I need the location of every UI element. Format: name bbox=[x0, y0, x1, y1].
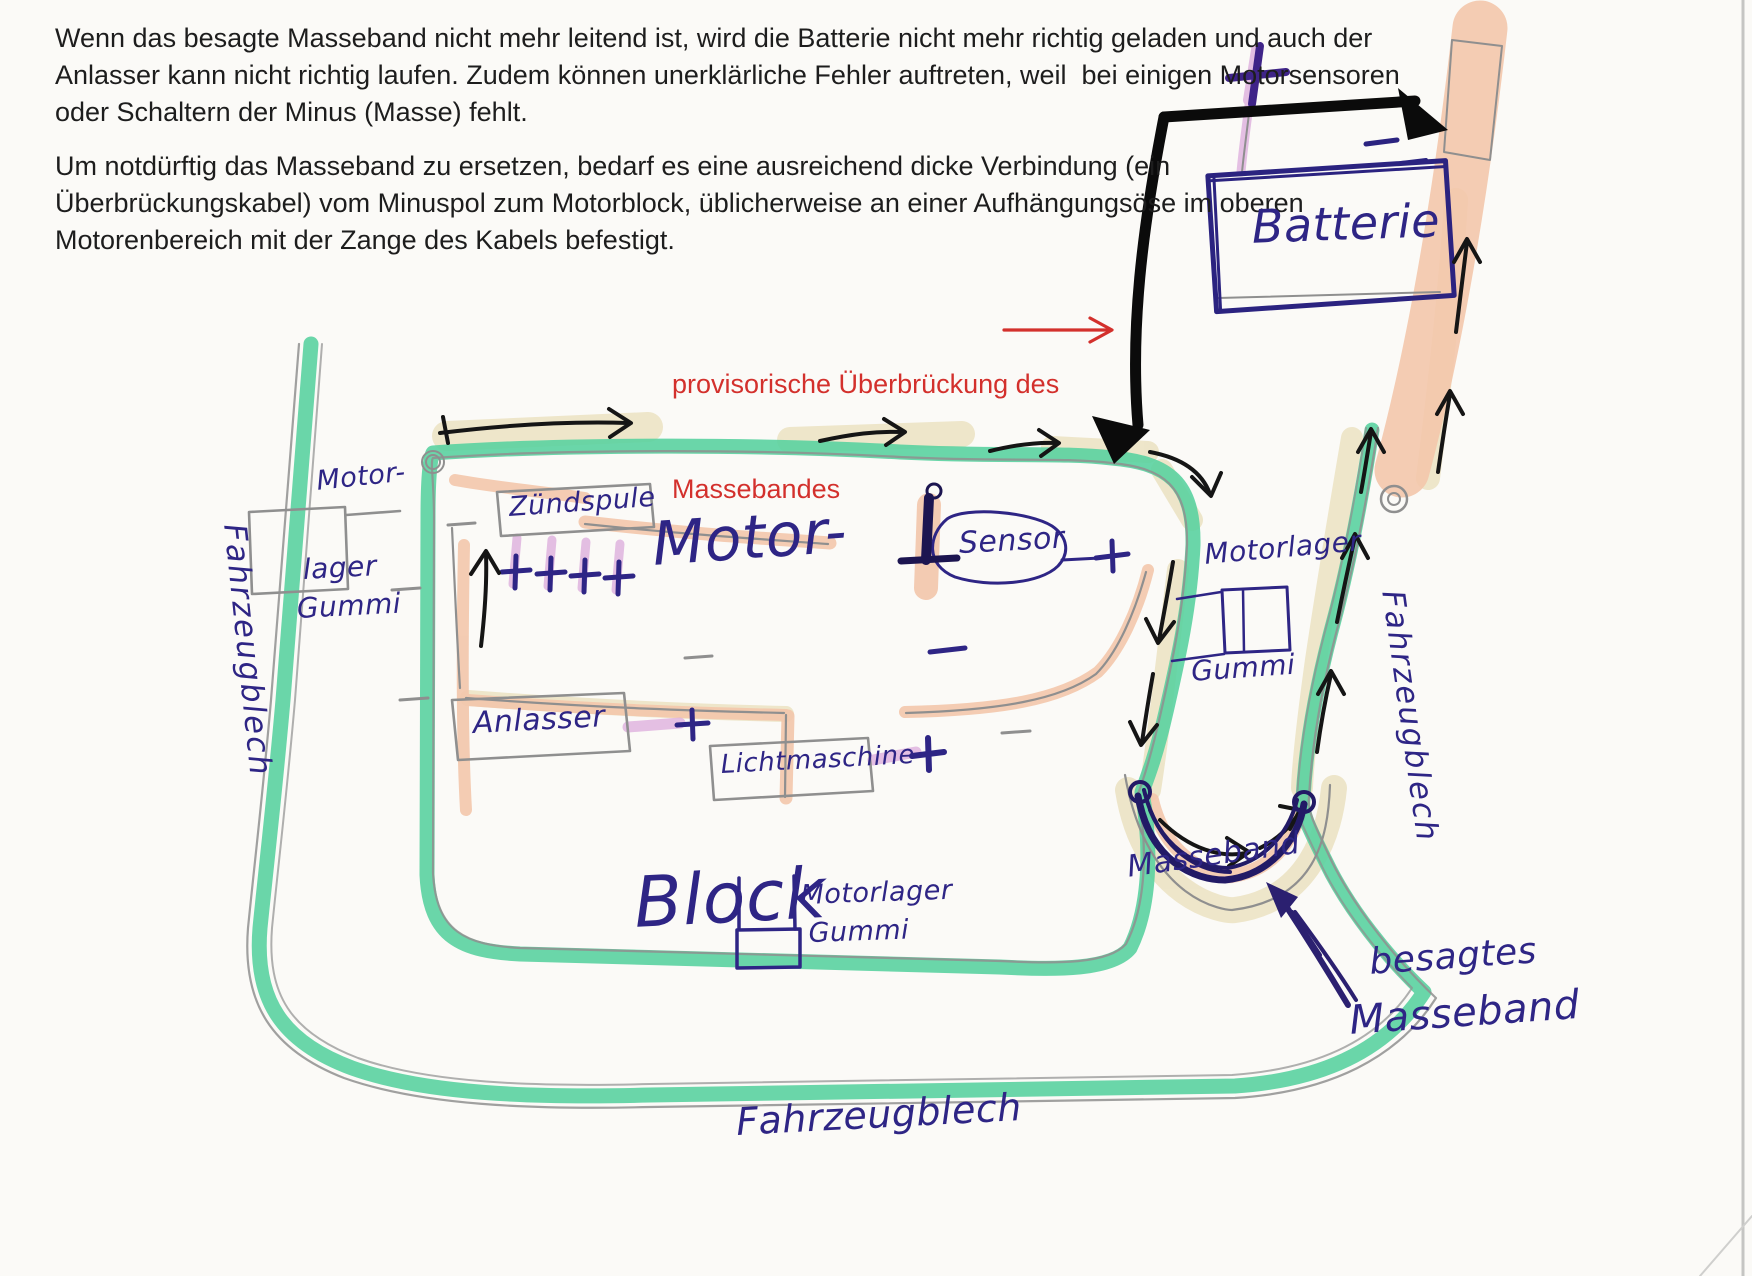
red-annotation-line2: Massebandes bbox=[672, 472, 1059, 507]
mount-left-label-line2: lager bbox=[302, 549, 378, 586]
intro-paragraph-2: Um notdürftig das Masseband zu ersetzen,… bbox=[55, 148, 1304, 259]
intro-p1-line1: Wenn das besagte Masseband nicht mehr le… bbox=[55, 20, 1400, 57]
sensor-label: Sensor bbox=[958, 520, 1066, 560]
mount-bottom-label-line1: Motorlager bbox=[800, 875, 953, 911]
mount-left-label-line3: Gummi bbox=[296, 587, 402, 625]
scanned-diagram-page: Wenn das besagte Masseband nicht mehr le… bbox=[0, 0, 1752, 1276]
intro-p1-line2: Anlasser kann nicht richtig laufen. Zude… bbox=[55, 57, 1400, 94]
anlasser-label: Anlasser bbox=[472, 699, 606, 741]
motor-label: Motor- bbox=[650, 496, 849, 579]
mount-bottom-label-line2: Gummi bbox=[808, 914, 910, 948]
sensor-plus-icon bbox=[1096, 541, 1128, 571]
intro-paragraph-1: Wenn das besagte Masseband nicht mehr le… bbox=[55, 20, 1400, 131]
battery-label: Batterie bbox=[1245, 193, 1447, 254]
red-annotation-line1: provisorische Überbrückung des bbox=[672, 367, 1059, 402]
block-label: Block bbox=[632, 852, 828, 944]
intro-p2-line3: Motorenbereich mit der Zange des Kabels … bbox=[55, 222, 1304, 259]
intro-p2-line1: Um notdürftig das Masseband zu ersetzen,… bbox=[55, 148, 1304, 185]
lichtmaschine-plus-icon bbox=[912, 738, 944, 770]
intro-p1-line3: oder Schaltern der Minus (Masse) fehlt. bbox=[55, 94, 1400, 131]
battery-minus-icon bbox=[1366, 140, 1426, 163]
intro-p2-line2: Überbrückungskabel) vom Minuspol zum Mot… bbox=[55, 185, 1304, 222]
